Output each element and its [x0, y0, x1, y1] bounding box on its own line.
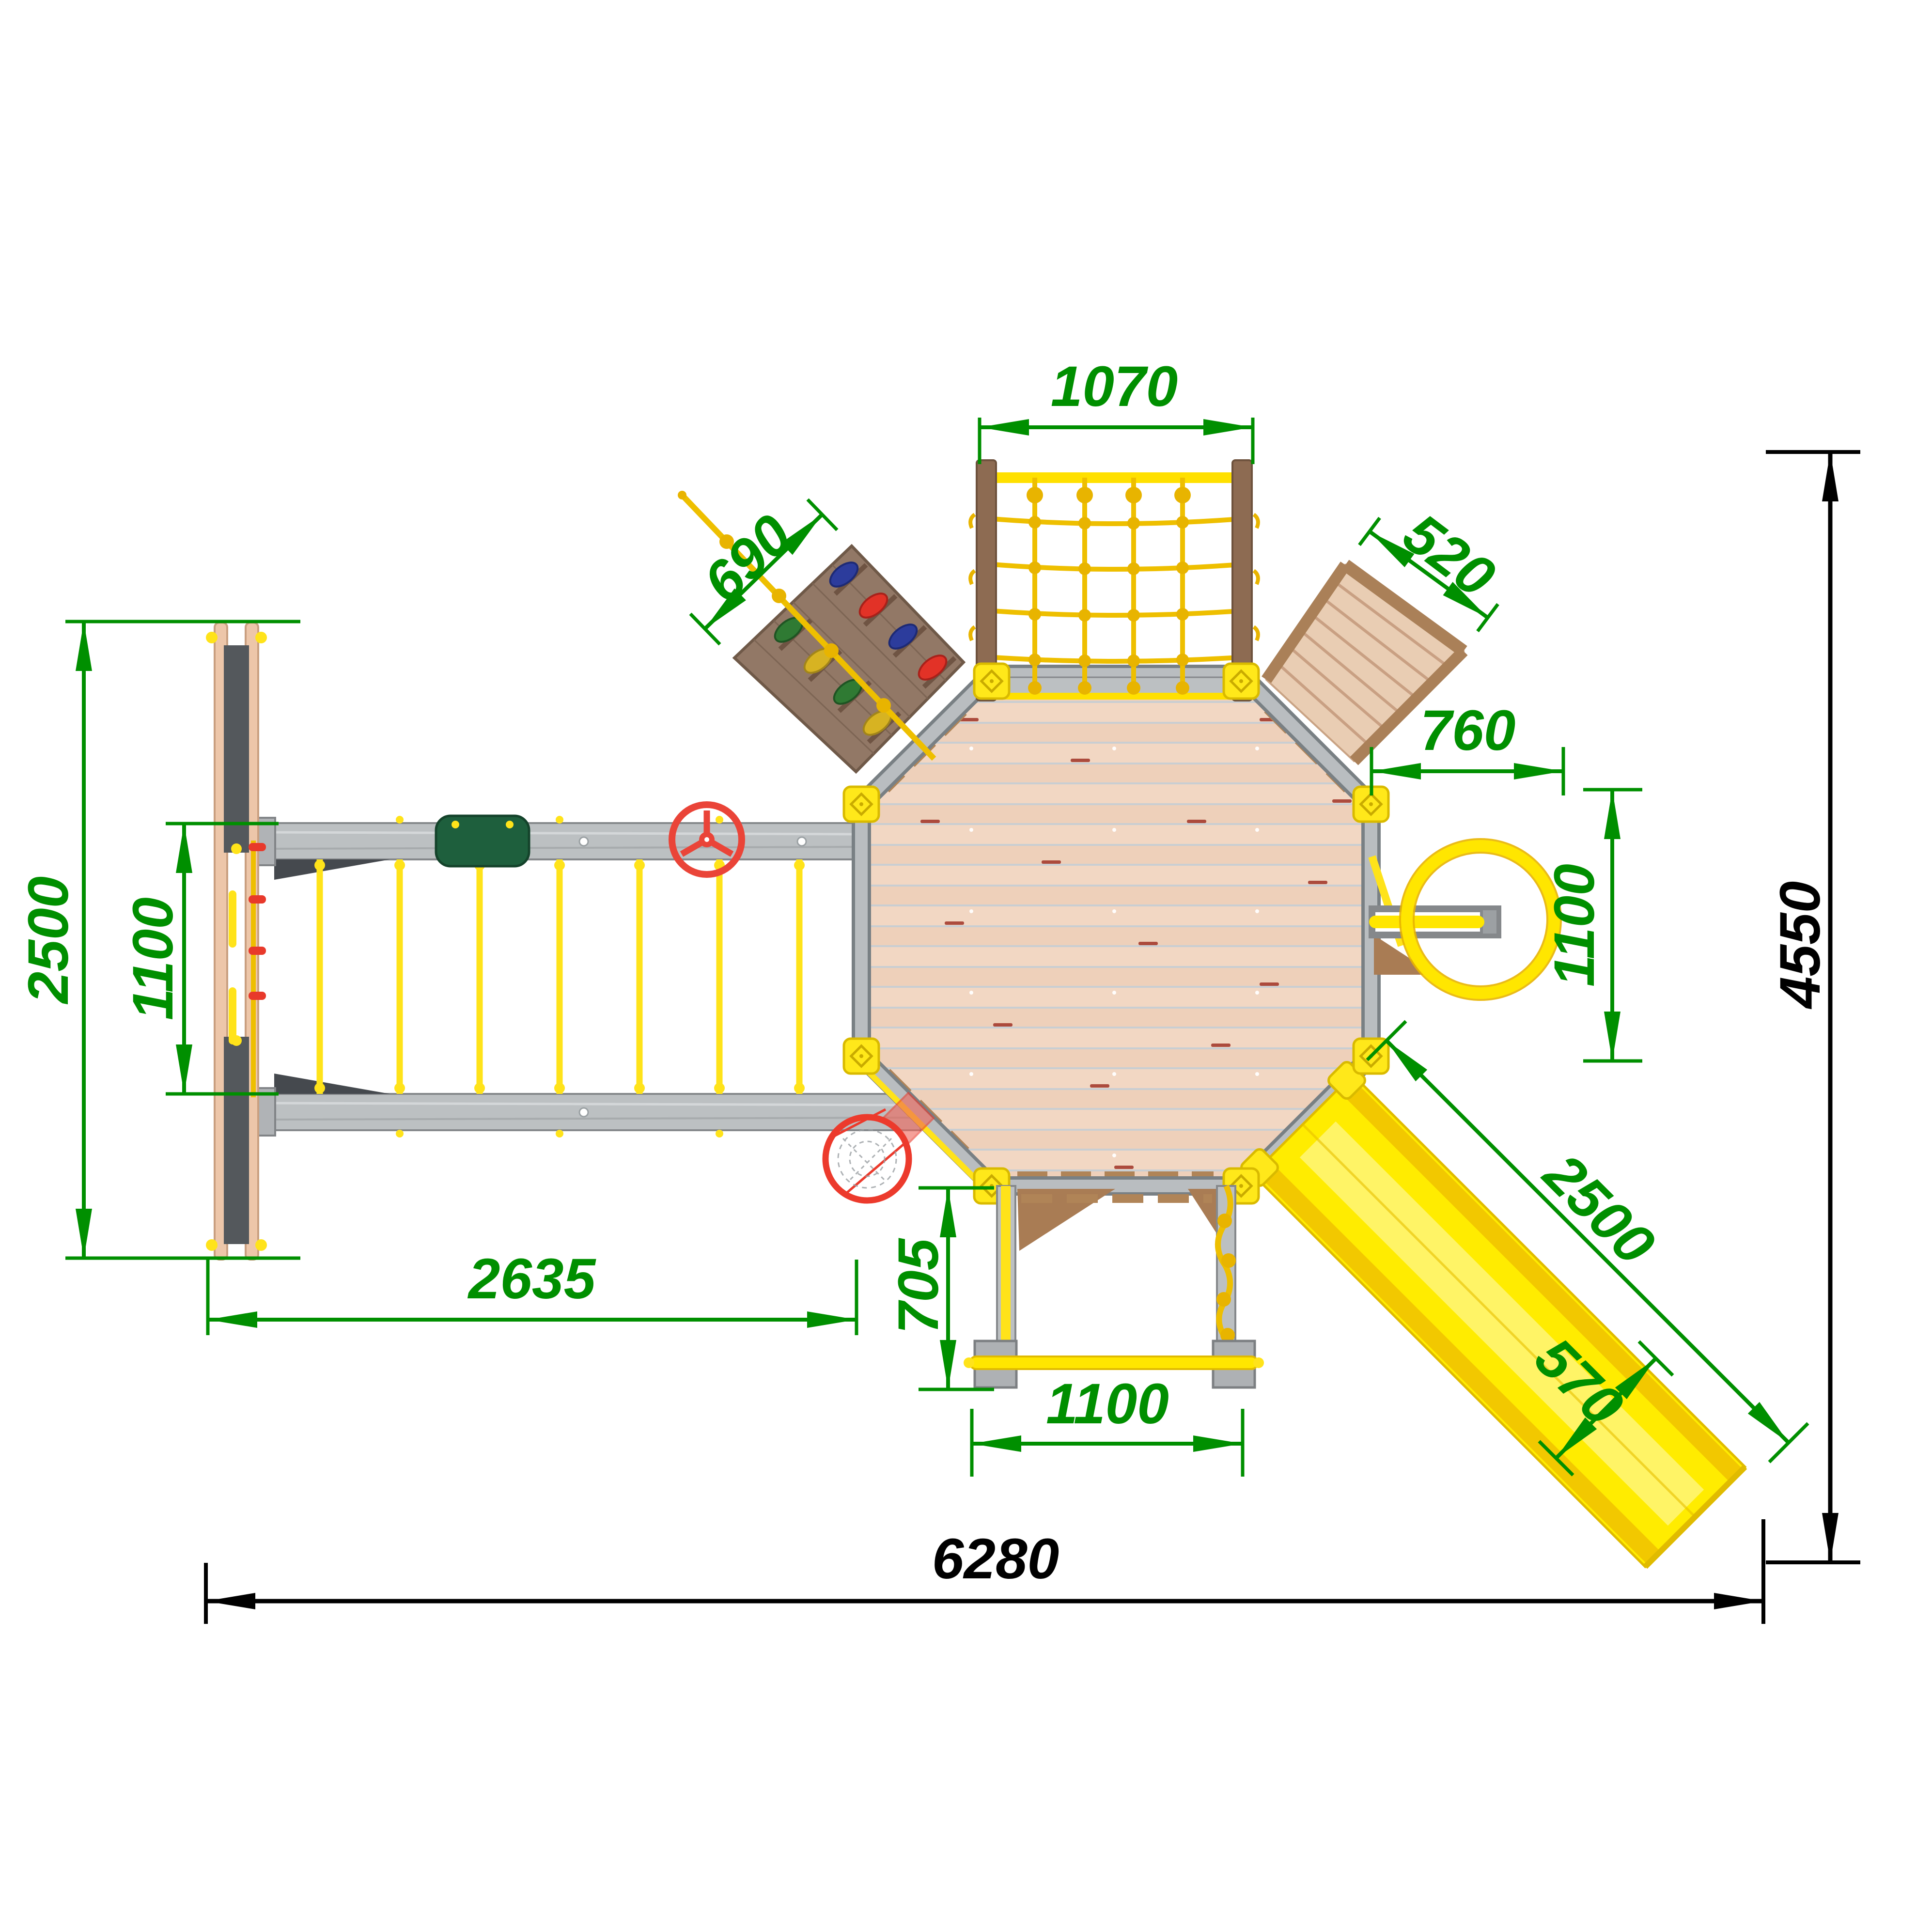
pullup-station [964, 1186, 1264, 1387]
dim-label-520: 520 [1392, 501, 1507, 609]
swing-seat [436, 816, 529, 866]
deck [858, 674, 1371, 1193]
net-ropes [986, 478, 1247, 696]
monkey-bars [251, 816, 920, 1137]
dim-label-1100-right: 1100 [1542, 864, 1606, 987]
dim-label-1100-bottom: 1100 [1046, 1372, 1169, 1436]
swing-frame [206, 623, 267, 1260]
dimension-net-width: 1070 [980, 355, 1253, 464]
dimension-right-span: 1100 [1542, 790, 1642, 1061]
dim-label-705: 705 [887, 1237, 950, 1334]
climbing-wall [678, 491, 964, 772]
dim-label-760: 760 [1420, 699, 1516, 763]
dim-label-6280: 6280 [932, 1527, 1059, 1591]
aframe-brace-top [224, 645, 249, 853]
climbing-net [970, 460, 1258, 701]
dimension-overall-width: 6280 [206, 1519, 1763, 1624]
deck-planks [861, 674, 1371, 1186]
dim-label-2500-slide: 2500 [1531, 1141, 1667, 1277]
dim-label-2500-left: 2500 [16, 876, 80, 1005]
net-hooks [970, 514, 1258, 640]
pullup-bar [970, 1356, 1258, 1369]
monkey-bar-rungs [320, 859, 799, 1094]
rung-caps [314, 816, 916, 1137]
net-sill [975, 677, 1259, 694]
monkey-bar-beam-top [257, 823, 874, 859]
hang-ring [1369, 846, 1554, 993]
dim-label-1070: 1070 [1051, 355, 1178, 419]
dim-label-4550: 4550 [1768, 881, 1832, 1010]
fireman-pole [1001, 1186, 1011, 1356]
dim-label-1100-left: 1100 [121, 897, 185, 1020]
beam-brace-top [274, 859, 390, 880]
dimension-monkey-bars: 2635 [208, 1247, 857, 1335]
playground-top-view-drawing: 1070 690 520 760 1100 2500 570 [0, 0, 1932, 1932]
ring-crossbar [1369, 916, 1484, 928]
aframe-brace-bottom [224, 1037, 249, 1244]
slide [1239, 1060, 1745, 1567]
beam-brace-bottom [274, 1074, 390, 1094]
dimension-overall-depth: 4550 [1766, 452, 1860, 1562]
dim-label-2635: 2635 [467, 1247, 597, 1311]
